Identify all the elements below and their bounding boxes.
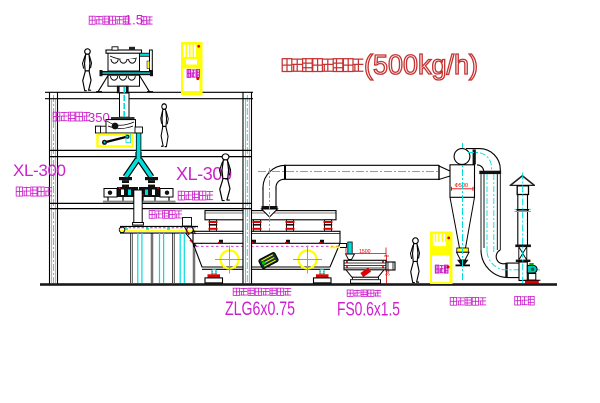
svg-text:FS0.6x1.5: FS0.6x1.5 <box>337 300 400 321</box>
svg-text:Φ500: Φ500 <box>455 183 469 189</box>
svg-text:XL-300: XL-300 <box>13 161 66 180</box>
svg-text:1.5: 1.5 <box>125 13 144 28</box>
svg-text:1500: 1500 <box>359 249 371 255</box>
svg-text:ZLG6x0.75: ZLG6x0.75 <box>225 299 295 320</box>
svg-text:(500kg/h): (500kg/h) <box>364 49 478 80</box>
